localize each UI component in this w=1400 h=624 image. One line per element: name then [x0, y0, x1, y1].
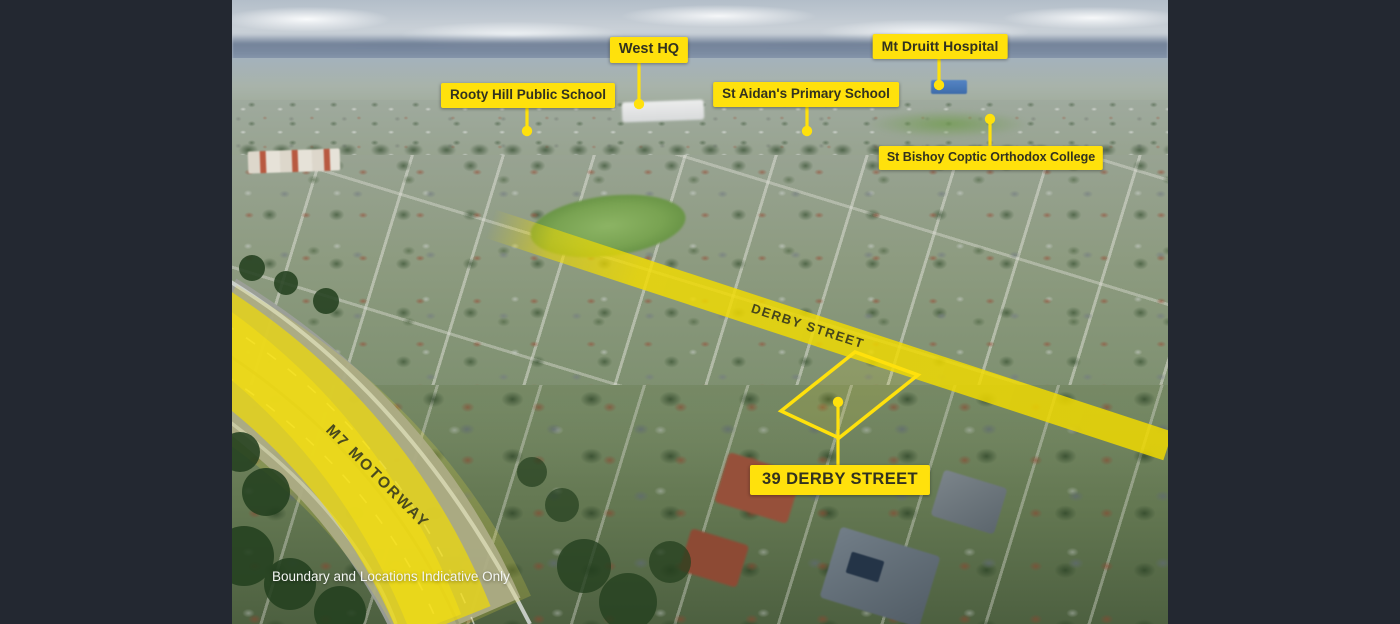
aerial-photo: West HQ Rooty Hill Public School Mt Drui… — [232, 0, 1168, 624]
callout-rooty-hill-public-school: Rooty Hill Public School — [441, 83, 615, 108]
disclaimer-text: Boundary and Locations Indicative Only — [272, 569, 510, 584]
callout-mt-druitt-hospital: Mt Druitt Hospital — [873, 34, 1008, 59]
annotation-overlay — [232, 0, 1168, 624]
callout-st-bishoy-college: St Bishoy Coptic Orthodox College — [879, 146, 1103, 170]
callout-west-hq: West HQ — [610, 37, 688, 63]
callout-st-aidans-primary-school: St Aidan's Primary School — [713, 82, 899, 107]
letterboxed-marketing-image: West HQ Rooty Hill Public School Mt Drui… — [0, 0, 1400, 624]
callout-39-derby-street: 39 DERBY STREET — [750, 465, 930, 495]
